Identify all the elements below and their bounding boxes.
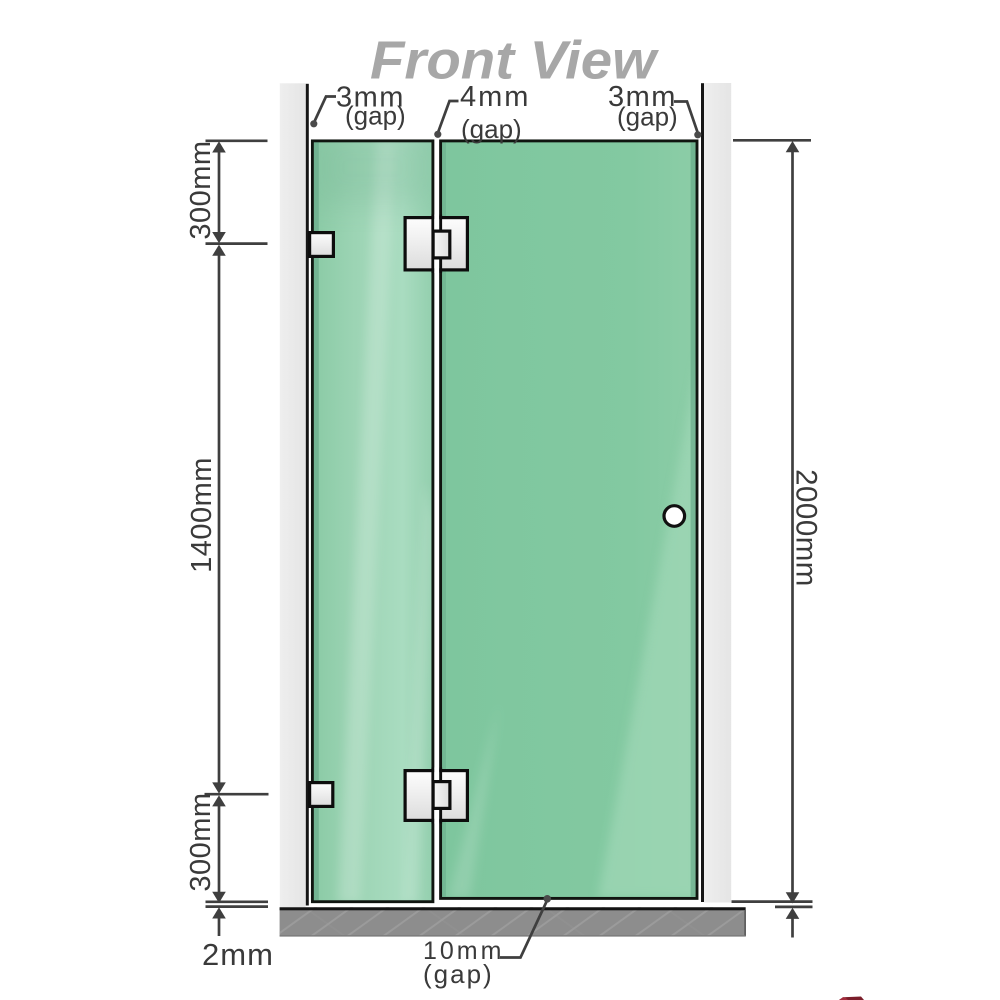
svg-text:300mm: 300mm	[185, 792, 217, 891]
svg-text:(gap): (gap)	[617, 102, 678, 132]
svg-text:2000mm: 2000mm	[790, 469, 823, 587]
svg-text:(gap): (gap)	[423, 959, 494, 989]
svg-text:1400mm: 1400mm	[186, 457, 218, 573]
svg-text:2mm: 2mm	[202, 937, 274, 972]
svg-text:300mm: 300mm	[185, 140, 217, 239]
svg-text:4mm: 4mm	[460, 81, 530, 113]
svg-text:(gap): (gap)	[345, 101, 406, 131]
svg-text:(gap): (gap)	[461, 114, 522, 144]
